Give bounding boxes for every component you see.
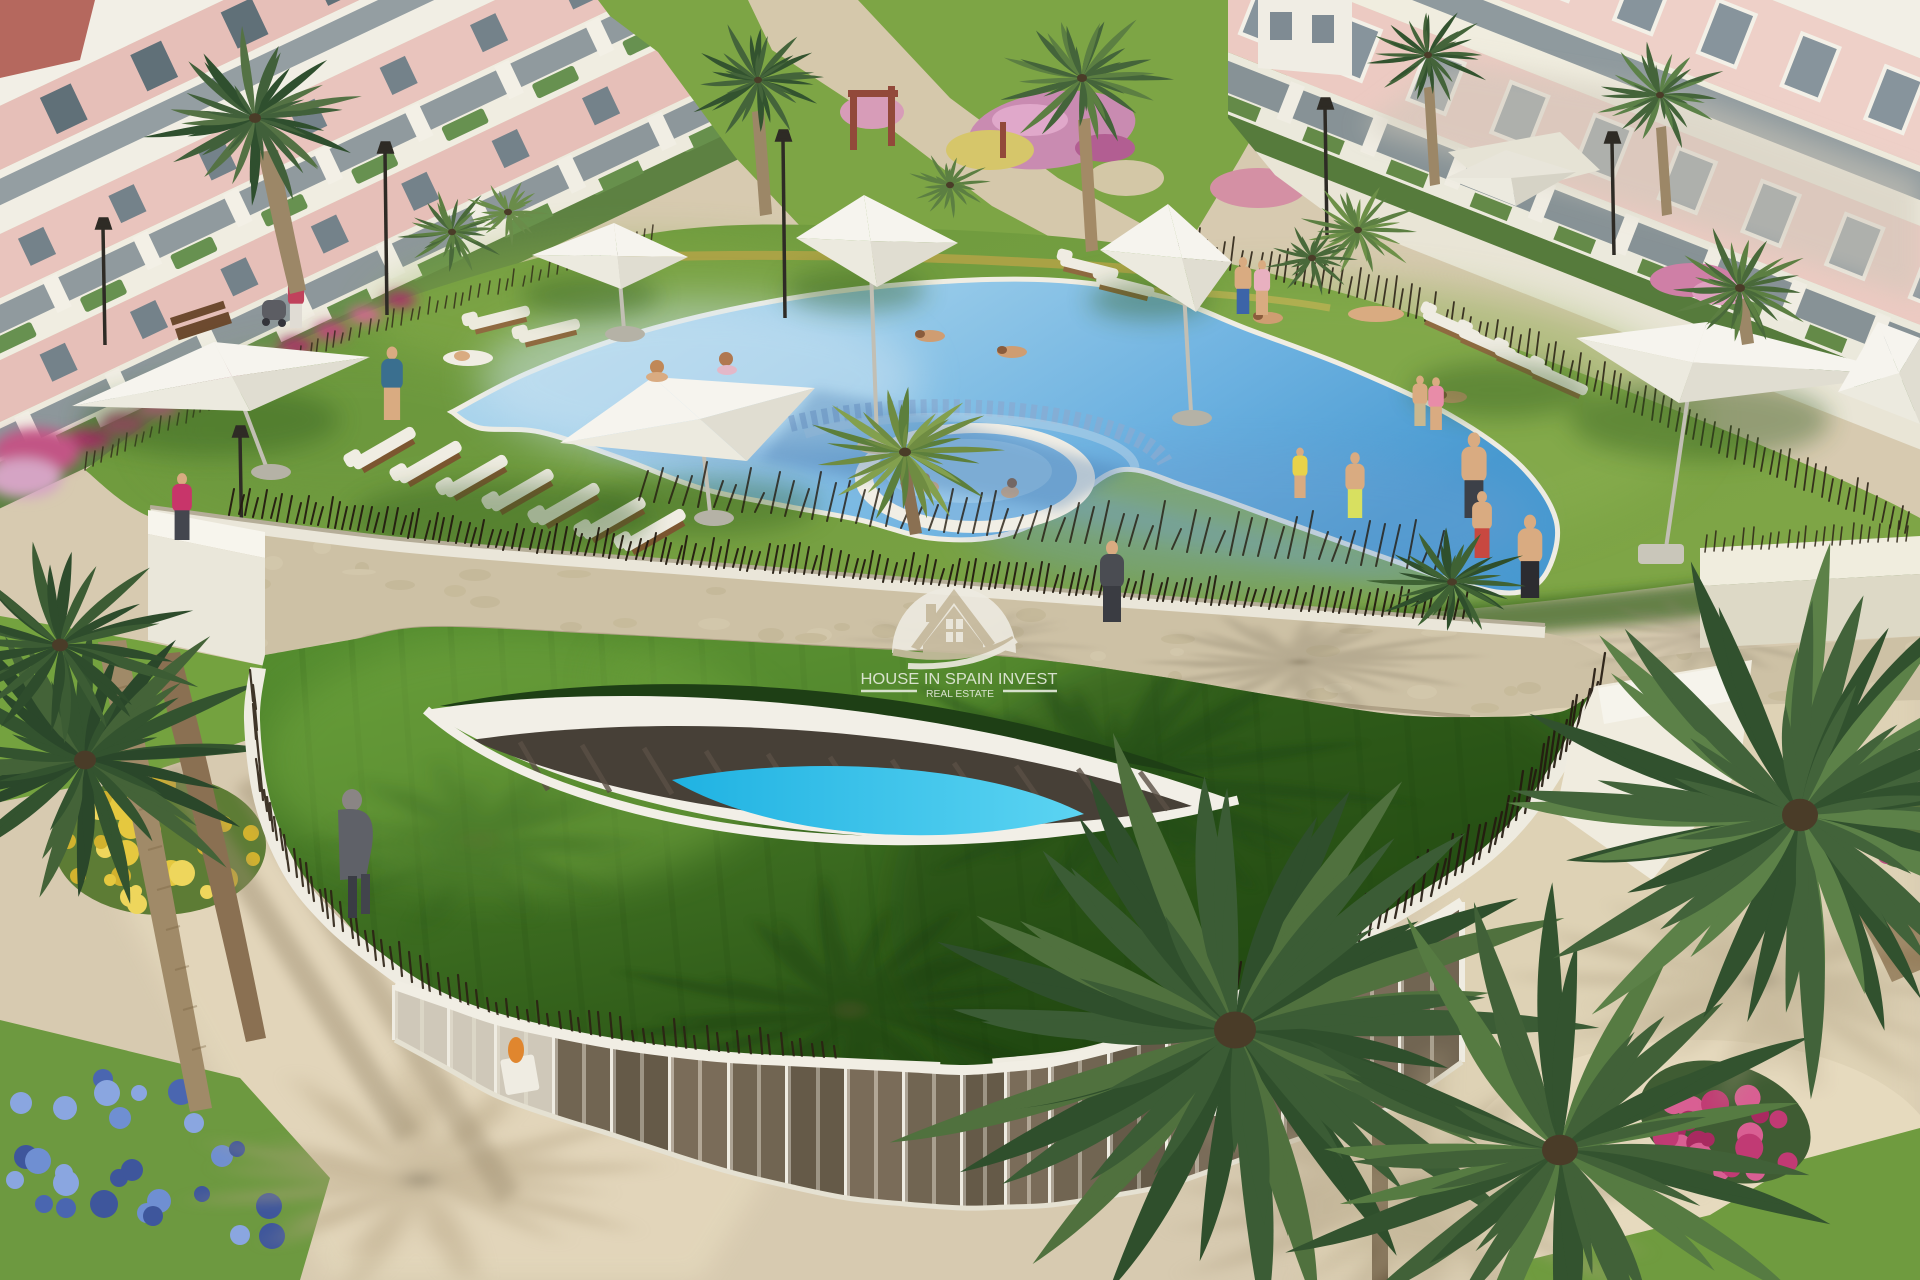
svg-text:REAL ESTATE: REAL ESTATE <box>926 689 994 700</box>
svg-text:HOUSE IN SPAIN INVEST: HOUSE IN SPAIN INVEST <box>861 671 1058 688</box>
